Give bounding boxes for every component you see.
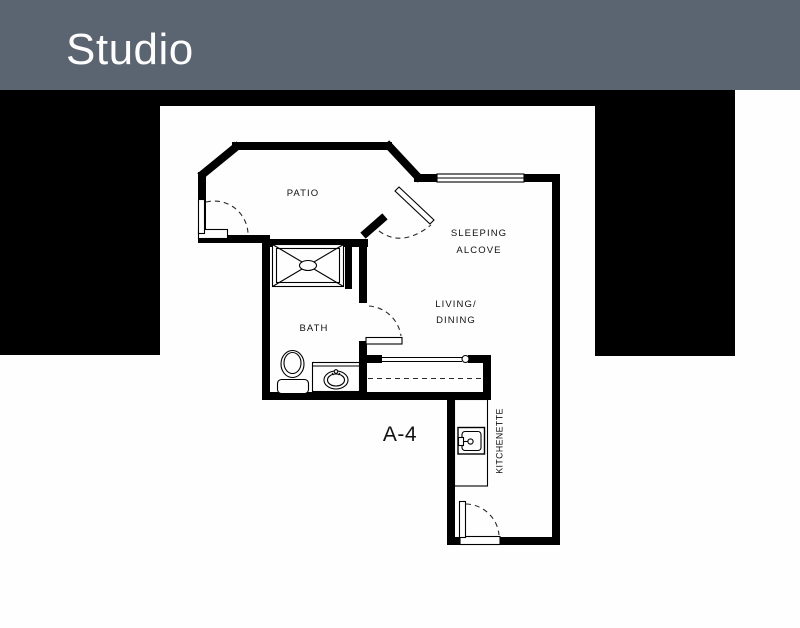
kitchen-sink: [458, 428, 485, 455]
shower: [273, 245, 344, 287]
vanity-sink: [313, 363, 360, 392]
unit-label: A-4: [383, 423, 417, 446]
page-title: Studio: [66, 25, 194, 74]
entry-door-leaf: [460, 502, 466, 538]
floor-plan-page: Studio: [0, 0, 800, 628]
mask-left-block: [0, 90, 160, 355]
bath-label: BATH: [299, 323, 328, 334]
kitchenette-label: KITCHENETTE: [495, 408, 505, 474]
patio-door-leaf: [199, 200, 205, 234]
sleeping-alcove-label-line1: SLEEPING: [451, 228, 507, 239]
mask-right-block: [595, 90, 735, 356]
living-dining-label-line1: LIVING/: [435, 299, 477, 310]
floor-plan-canvas: Studio: [0, 0, 800, 628]
living-dining-label-line2: DINING: [436, 315, 476, 326]
header-band: Studio: [0, 0, 800, 90]
sleeping-alcove-label-line2: ALCOVE: [456, 245, 501, 256]
bath-door-leaf: [366, 338, 402, 345]
door-stop: [462, 356, 469, 363]
patio-label: PATIO: [287, 188, 320, 199]
